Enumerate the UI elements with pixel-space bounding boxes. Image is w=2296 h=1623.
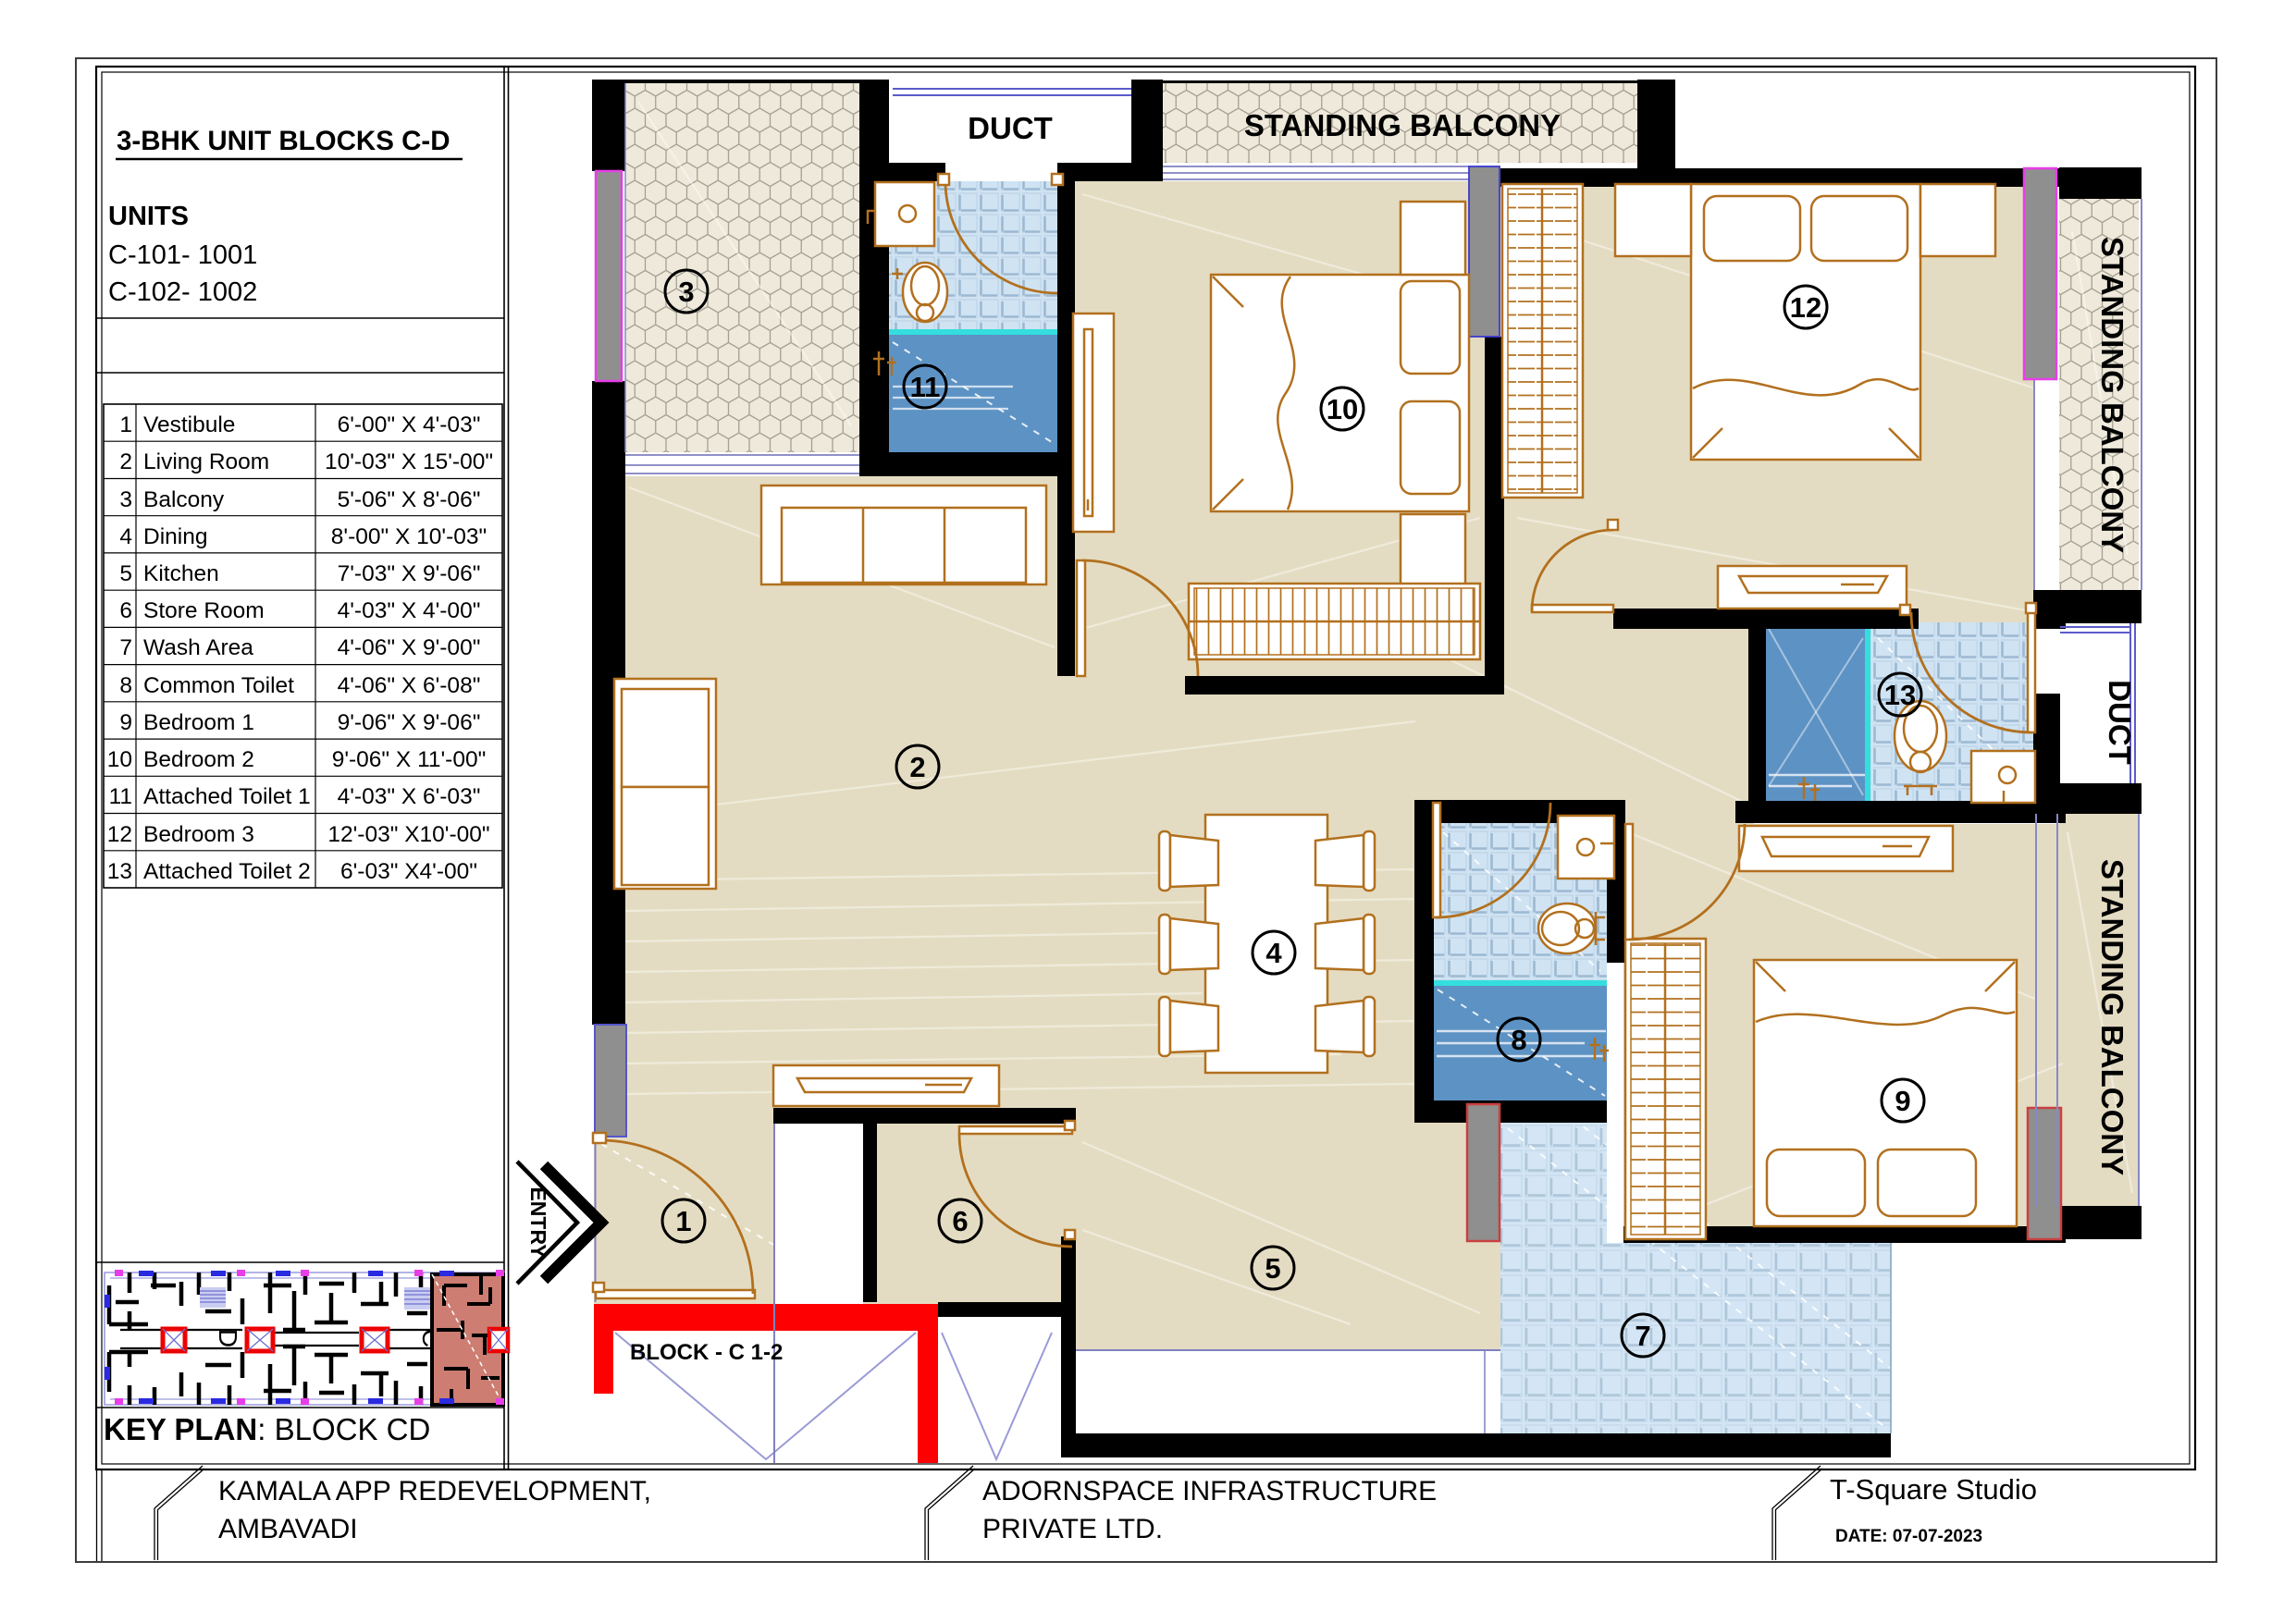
svg-text:7: 7 xyxy=(1635,1320,1650,1352)
svg-text:Dining: Dining xyxy=(143,524,207,549)
svg-text:2: 2 xyxy=(119,449,132,474)
svg-text:9: 9 xyxy=(119,710,132,735)
svg-text:4'-03" X 4'-00": 4'-03" X 4'-00" xyxy=(338,598,481,623)
svg-text:8: 8 xyxy=(1511,1024,1526,1056)
svg-text:Bedroom 1: Bedroom 1 xyxy=(143,710,254,735)
svg-text:ADORNSPACE INFRASTRUCTURE: ADORNSPACE INFRASTRUCTURE xyxy=(982,1476,1437,1506)
svg-text:13: 13 xyxy=(107,859,132,884)
svg-text:UNITS: UNITS xyxy=(108,202,189,231)
svg-text:DUCT: DUCT xyxy=(2103,680,2137,765)
svg-text:STANDING BALCONY: STANDING BALCONY xyxy=(2095,859,2129,1175)
svg-text:Living Room: Living Room xyxy=(143,449,269,474)
svg-text:4'-06" X 9'-00": 4'-06" X 9'-00" xyxy=(338,635,481,660)
svg-text:12: 12 xyxy=(1790,291,1821,324)
svg-text:AMBAVADI: AMBAVADI xyxy=(218,1514,358,1544)
svg-text:9'-06" X 11'-00": 9'-06" X 11'-00" xyxy=(332,747,487,772)
svg-text:Bedroom 3: Bedroom 3 xyxy=(143,822,254,847)
svg-text:1: 1 xyxy=(675,1205,691,1237)
svg-text:13: 13 xyxy=(1884,679,1916,711)
svg-text:STANDING BALCONY: STANDING BALCONY xyxy=(1244,108,1561,142)
svg-text:C-101- 1001: C-101- 1001 xyxy=(108,240,257,270)
svg-text:Attached Toilet 1: Attached Toilet 1 xyxy=(143,784,311,809)
svg-text:4: 4 xyxy=(119,524,132,549)
svg-text:10'-03" X 15'-00": 10'-03" X 15'-00" xyxy=(325,449,493,474)
svg-text:Wash Area: Wash Area xyxy=(143,635,253,660)
svg-text:KEY PLAN: BLOCK CD: KEY PLAN: BLOCK CD xyxy=(104,1412,430,1446)
svg-text:3: 3 xyxy=(119,487,132,512)
svg-text:Vestibule: Vestibule xyxy=(143,412,235,437)
svg-text:6: 6 xyxy=(952,1205,968,1237)
svg-text:3-BHK UNIT BLOCKS C-D: 3-BHK UNIT BLOCKS C-D xyxy=(117,126,451,156)
svg-text:Common Toilet: Common Toilet xyxy=(143,673,294,698)
svg-text:5: 5 xyxy=(1265,1252,1280,1285)
svg-text:T-Square Studio: T-Square Studio xyxy=(1830,1473,2037,1506)
svg-text:KAMALA APP REDEVELOPMENT,: KAMALA APP REDEVELOPMENT, xyxy=(218,1476,651,1506)
svg-text:PRIVATE LTD.: PRIVATE LTD. xyxy=(982,1514,1163,1544)
svg-text:Balcony: Balcony xyxy=(143,487,225,512)
svg-text:STANDING BALCONY: STANDING BALCONY xyxy=(2095,237,2129,553)
svg-text:4'-03" X 6'-03": 4'-03" X 6'-03" xyxy=(338,784,481,809)
svg-text:BLOCK - C 1-2: BLOCK - C 1-2 xyxy=(630,1340,783,1365)
svg-text:7'-03" X 9'-06": 7'-03" X 9'-06" xyxy=(338,561,481,586)
svg-text:10: 10 xyxy=(1327,393,1358,425)
svg-text:4: 4 xyxy=(1265,937,1282,969)
svg-text:6'-00" X 4'-03": 6'-00" X 4'-03" xyxy=(338,412,481,437)
svg-text:Bedroom 2: Bedroom 2 xyxy=(143,747,254,772)
svg-text:5'-06" X 8'-06": 5'-06" X 8'-06" xyxy=(338,487,481,512)
svg-text:C-102- 1002: C-102- 1002 xyxy=(108,277,257,307)
svg-text:ENTRY: ENTRY xyxy=(526,1187,550,1258)
svg-text:Attached Toilet 2: Attached Toilet 2 xyxy=(143,859,311,884)
svg-text:11: 11 xyxy=(109,784,132,809)
svg-text:11: 11 xyxy=(910,371,941,403)
svg-text:12'-03" X10'-00": 12'-03" X10'-00" xyxy=(327,822,489,847)
svg-text:4'-06" X 6'-08": 4'-06" X 6'-08" xyxy=(338,673,481,698)
svg-text:8: 8 xyxy=(119,673,132,698)
svg-text:8'-00" X 10'-03": 8'-00" X 10'-03" xyxy=(331,524,487,549)
svg-text:5: 5 xyxy=(119,561,132,586)
svg-text:DUCT: DUCT xyxy=(968,111,1053,145)
svg-text:3: 3 xyxy=(678,276,694,308)
svg-text:9: 9 xyxy=(1895,1085,1910,1117)
svg-text:9'-06" X 9'-06": 9'-06" X 9'-06" xyxy=(338,710,481,735)
svg-text:12: 12 xyxy=(107,822,132,847)
svg-text:Store Room: Store Room xyxy=(143,598,265,623)
svg-text:7: 7 xyxy=(119,635,132,660)
svg-text:6: 6 xyxy=(119,598,132,623)
svg-text:10: 10 xyxy=(107,747,132,772)
svg-text:D: D xyxy=(214,1329,242,1347)
svg-text:1: 1 xyxy=(119,412,132,437)
svg-text:DATE: 07-07-2023: DATE: 07-07-2023 xyxy=(1835,1527,1982,1546)
svg-text:6'-03" X4'-00": 6'-03" X4'-00" xyxy=(340,859,477,884)
svg-text:2: 2 xyxy=(909,751,925,783)
svg-text:Kitchen: Kitchen xyxy=(143,561,219,586)
